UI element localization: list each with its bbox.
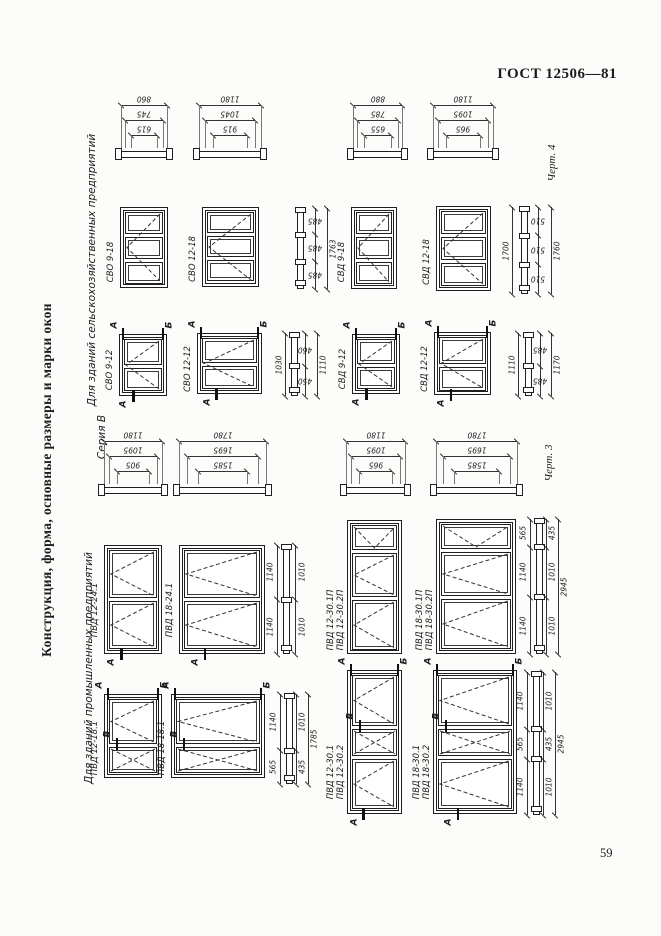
profile-block [289, 387, 300, 393]
dim-label: 1700 [502, 241, 511, 260]
dim-line [446, 135, 480, 136]
profile-block [519, 285, 530, 291]
dim-line [359, 471, 360, 484]
section-mark-letter: А [119, 401, 130, 408]
dim-label: 1180 [123, 431, 142, 440]
section-mark-tick [204, 648, 207, 660]
section-mark-tick [436, 664, 439, 676]
opening-symbol-icon [352, 759, 397, 809]
profile-block [531, 671, 542, 677]
dim-line [247, 471, 248, 484]
dim-line [351, 456, 400, 457]
dim-line [400, 456, 401, 484]
dim-line [280, 694, 281, 784]
dim-line [364, 135, 365, 148]
dim-line [157, 135, 158, 148]
section-mark-letter: А [107, 659, 118, 666]
opening-symbol-icon [438, 759, 512, 809]
dim-line [198, 471, 247, 472]
sill-bar [175, 487, 270, 494]
section-mark-tick [445, 720, 448, 732]
dim-label: 1140 [266, 617, 275, 636]
dim-label: 1110 [319, 355, 328, 374]
dim-label: 435 [298, 760, 307, 774]
dim-line [179, 441, 266, 442]
section-mark-tick [257, 327, 260, 339]
profile-bar [521, 207, 528, 294]
dim-label: 485 [308, 244, 322, 253]
section-mark-tick [486, 326, 489, 338]
sill-bar [100, 487, 166, 494]
dim-label: 450 [298, 377, 312, 386]
dim-line [121, 105, 167, 106]
opening-symbol-icon [352, 600, 397, 650]
dim-label: 1780 [213, 431, 232, 440]
sill-bar [429, 151, 497, 158]
section-mark-tick [107, 688, 110, 700]
dim-label: 655 [370, 125, 384, 134]
dim-label: 1140 [519, 563, 528, 582]
section-mark-tick [450, 389, 453, 401]
dim-label: 460 [298, 345, 312, 354]
section-mark-letter: Б [515, 658, 526, 665]
dim-line [443, 456, 510, 457]
profile-block [534, 645, 545, 651]
sill-end-block [161, 484, 168, 496]
profile-block [289, 363, 300, 369]
sill-bar [349, 151, 406, 158]
dim-line [109, 456, 157, 457]
dim-line [104, 441, 105, 484]
dim-label: 1010 [298, 713, 307, 732]
dim-label: 1030 [275, 355, 284, 374]
section-mark-tick [362, 808, 365, 820]
dim-label: 1760 [553, 241, 562, 260]
dim-line [398, 120, 399, 148]
dim-line [402, 105, 403, 148]
dim-line [438, 120, 488, 121]
dim-label: 1785 [310, 729, 319, 748]
dim-label: 485 [308, 217, 322, 226]
profile-block [284, 775, 295, 781]
profile-block [284, 693, 295, 699]
dim-label: 565 [516, 737, 525, 751]
window-mark-label: СВО 9-12 [105, 350, 115, 390]
opening-symbol-icon [438, 675, 512, 726]
sill-end-block [173, 484, 180, 496]
dim-line [187, 456, 258, 457]
opening-symbol-icon [352, 675, 397, 726]
dim-label: 1170 [553, 355, 562, 374]
sill-end-block [401, 148, 408, 160]
dim-label: 1140 [519, 616, 528, 635]
dim-line [436, 441, 437, 484]
dim-line [446, 135, 447, 148]
profile-bar [286, 694, 293, 784]
window-mark-label: ПВД 18-30.1П ПВД 18-30.2П [415, 590, 435, 651]
dim-line [131, 135, 157, 136]
section-mark-letter: А [349, 819, 360, 826]
section-mark-tick [200, 327, 203, 339]
dim-line [266, 441, 267, 484]
dim-line [392, 471, 393, 484]
dim-label: 1585 [467, 461, 486, 470]
dim-label: 1140 [269, 713, 278, 732]
dim-label: 915 [223, 125, 237, 134]
section-mark-letter: В [432, 713, 443, 720]
dim-label: 1140 [516, 778, 525, 797]
dim-line [213, 135, 247, 136]
dim-label: 1010 [545, 691, 554, 710]
dim-line [213, 135, 214, 148]
dim-line [512, 207, 513, 294]
dim-line [109, 456, 110, 484]
opening-symbol-icon [357, 339, 395, 389]
dim-label: 1763 [329, 239, 338, 258]
sill-bar [432, 487, 521, 494]
sill-end-block [347, 148, 354, 160]
dim-line [247, 135, 248, 148]
dim-label: 1045 [220, 110, 239, 119]
dim-line [117, 471, 149, 472]
drawing-canvas: 8607456151180104591588078565511801095965… [0, 0, 661, 936]
window-mark-label: ПВД 18-30.1 ПВД 18-30.2 [412, 745, 432, 799]
dim-line [199, 105, 200, 148]
section-mark-letter: Б [400, 658, 411, 665]
section-mark-tick [122, 328, 125, 340]
opening-symbol-icon [207, 212, 254, 282]
dim-line [353, 105, 354, 148]
dim-line [205, 120, 206, 148]
profile-block [519, 262, 530, 268]
dim-line [255, 120, 256, 148]
sill-end-block [193, 148, 200, 160]
dim-line [443, 456, 444, 484]
sill-bar [195, 151, 265, 158]
dim-label: 435 [545, 737, 554, 751]
profile-block [523, 332, 534, 338]
section-mark-tick [355, 328, 358, 340]
dim-label: 1180 [366, 431, 385, 440]
dim-line [199, 105, 261, 106]
dim-line [167, 105, 168, 148]
section-mark-letter: В [346, 713, 357, 720]
opening-symbol-icon [352, 553, 397, 597]
dim-label: 1095 [123, 446, 142, 455]
dim-line [353, 105, 402, 106]
dim-label: 880 [370, 95, 384, 104]
dim-label: 1010 [548, 616, 557, 635]
window-mark-label: ПВД 18-18.1 [157, 721, 167, 775]
dim-line [104, 441, 162, 442]
sill-end-block [492, 148, 499, 160]
dim-line [540, 333, 541, 396]
dim-label: 965 [456, 125, 470, 134]
section-mark-letter: А [343, 322, 354, 329]
profile-block [295, 232, 306, 238]
section-mark-letter: А [110, 322, 121, 329]
dim-label: 565 [519, 526, 528, 540]
opening-symbol-icon [441, 552, 511, 596]
section-mark-letter: В [103, 730, 114, 737]
dim-line [351, 456, 352, 484]
dim-line [162, 441, 163, 484]
dim-line [359, 471, 392, 472]
dim-label: 1010 [548, 563, 557, 582]
sill-end-block [427, 148, 434, 160]
dim-label: 965 [368, 461, 382, 470]
dim-label: 485 [533, 377, 547, 386]
section-mark-letter: Б [398, 322, 409, 329]
dim-label: 1585 [213, 461, 232, 470]
sill-end-block [265, 484, 272, 496]
profile-block [281, 597, 292, 603]
section-mark-tick [215, 388, 218, 400]
dim-line [346, 441, 347, 484]
dim-line [125, 120, 126, 148]
window-mark-label: СВД 12-12 [420, 346, 430, 392]
dim-line [198, 471, 199, 484]
dim-label: 1140 [516, 691, 525, 710]
sill-end-block [404, 484, 411, 496]
profile-bar [297, 208, 304, 289]
dim-line [510, 456, 511, 484]
dim-label: 510 [531, 275, 545, 284]
dim-line [187, 456, 188, 484]
dim-line [131, 135, 132, 148]
dim-label: 785 [370, 110, 384, 119]
section-mark-letter: Б [263, 682, 274, 689]
dim-line [205, 120, 255, 121]
opening-symbol-icon [439, 337, 486, 390]
section-mark-tick [512, 664, 515, 676]
section-mark-letter: А [425, 320, 436, 327]
opening-symbol-icon [176, 747, 260, 773]
dim-line [405, 441, 406, 484]
profile-block [523, 363, 534, 369]
dim-line [433, 105, 493, 106]
section-mark-tick [350, 664, 353, 676]
opening-symbol-icon [438, 729, 512, 756]
window-mark-label: ПВД 12-24.1 [90, 583, 100, 637]
section-mark-tick [365, 388, 368, 400]
dim-label: 1180 [453, 95, 472, 104]
sill-end-block [340, 484, 347, 496]
section-mark-letter: А [190, 659, 201, 666]
dim-line [480, 135, 481, 148]
dim-line [364, 135, 391, 136]
dim-line [499, 471, 500, 484]
opening-symbol-icon [125, 212, 163, 283]
section-mark-letter: А [437, 400, 448, 407]
document-page: ГОСТ 12506—81 Конструкция, форма, основн… [0, 0, 661, 936]
opening-symbol-icon [184, 550, 260, 598]
dim-label: 860 [137, 95, 151, 104]
dim-label: 2945 [560, 577, 569, 596]
window-mark-label: СВО 12-12 [183, 346, 193, 392]
dim-label: 1180 [220, 95, 239, 104]
dim-line [357, 120, 358, 148]
dim-line [179, 441, 180, 484]
dim-label: 1695 [467, 446, 486, 455]
dim-line [530, 519, 531, 654]
section-mark-tick [162, 328, 165, 340]
section-mark-letter: А [202, 399, 213, 406]
sill-end-block [166, 148, 173, 160]
dim-label: 1780 [467, 431, 486, 440]
profile-block [519, 206, 530, 212]
section-mark-letter: Б [260, 321, 271, 328]
opening-symbol-icon [441, 211, 486, 286]
section-mark-tick [437, 326, 440, 338]
dim-line [305, 333, 306, 396]
profile-block [295, 207, 306, 213]
dim-label: 1695 [213, 446, 232, 455]
dim-label: 745 [137, 110, 151, 119]
dim-line [527, 672, 528, 815]
sill-end-block [115, 148, 122, 160]
section-mark-tick [174, 688, 177, 700]
section-mark-letter: А [424, 658, 435, 665]
window-mark-label: СВД 9-18 [337, 242, 347, 282]
profile-bar [533, 672, 540, 815]
dim-line [454, 471, 499, 472]
opening-symbol-icon [441, 599, 511, 649]
profile-block [519, 233, 530, 239]
dim-label: 485 [308, 271, 322, 280]
section-mark-letter: А [162, 682, 173, 689]
opening-symbol-icon [109, 601, 157, 649]
dim-label: 1010 [545, 778, 554, 797]
dim-line [433, 105, 434, 148]
opening-symbol-icon [202, 338, 257, 389]
opening-symbol-icon [356, 212, 392, 284]
sill-end-block [516, 484, 523, 496]
dim-label: 615 [137, 125, 151, 134]
section-mark-letter: А [95, 682, 106, 689]
opening-symbol-icon [109, 550, 157, 598]
section-mark-tick [260, 688, 263, 700]
section-mark-letter: А [352, 399, 363, 406]
dim-label: 1140 [266, 563, 275, 582]
opening-symbol-icon [109, 747, 157, 773]
dim-line [125, 120, 163, 121]
dim-line [517, 441, 518, 484]
dim-line [261, 105, 262, 148]
profile-block [295, 259, 306, 265]
sill-end-block [260, 148, 267, 160]
dim-line [518, 333, 519, 396]
profile-block [295, 280, 306, 286]
profile-block [281, 544, 292, 550]
dim-line [438, 120, 439, 148]
dim-line [493, 105, 494, 148]
dim-label: 1110 [508, 355, 517, 374]
section-mark-tick [132, 390, 135, 402]
window-mark-label: СВД 12-18 [422, 239, 432, 285]
window-mark-label: СВО 12-18 [188, 236, 198, 282]
window-mark-label: СВД 9-12 [338, 349, 348, 389]
sill-end-block [430, 484, 437, 496]
profile-block [523, 387, 534, 393]
dim-label: 1010 [298, 617, 307, 636]
dim-label: 1095 [453, 110, 472, 119]
opening-symbol-icon [184, 601, 260, 649]
section-mark-letter: В [170, 730, 181, 737]
dim-label: 510 [531, 246, 545, 255]
section-mark-letter: А [188, 321, 199, 328]
dim-line [149, 471, 150, 484]
dim-line [454, 471, 455, 484]
opening-symbol-icon [352, 525, 397, 550]
dim-label: 905 [126, 461, 140, 470]
dim-line [117, 471, 118, 484]
dim-label: 485 [533, 345, 547, 354]
profile-block [531, 806, 542, 812]
sill-bar [117, 151, 171, 158]
dim-line [157, 456, 158, 484]
sill-end-block [98, 484, 105, 496]
dim-line [357, 120, 398, 121]
section-mark-tick [397, 664, 400, 676]
dim-line [436, 441, 517, 442]
section-mark-tick [183, 738, 186, 750]
dim-label: 1010 [298, 563, 307, 582]
dim-line [488, 120, 489, 148]
sill-bar [342, 487, 409, 494]
opening-symbol-icon [176, 699, 260, 744]
section-mark-tick [157, 688, 160, 700]
dim-line [258, 456, 259, 484]
section-mark-tick [359, 720, 362, 732]
dim-label: 510 [531, 217, 545, 226]
window-mark-label: ПВД 12-30.1П ПВД 12-30.2П [326, 590, 346, 651]
dim-label: 435 [548, 526, 557, 540]
section-mark-letter: А [338, 658, 349, 665]
window-mark-label: ПВД 12-18.1 [90, 721, 100, 775]
dim-line [285, 333, 286, 396]
dim-line [391, 135, 392, 148]
profile-bar [536, 519, 543, 654]
section-mark-tick [120, 648, 123, 660]
section-mark-tick [395, 328, 398, 340]
dim-label: 1095 [366, 446, 385, 455]
window-mark-label: ПВД 18-24.1 [165, 583, 175, 637]
dim-line [346, 441, 405, 442]
section-mark-letter: А [444, 819, 455, 826]
section-mark-tick [116, 738, 119, 750]
profile-block [289, 332, 300, 338]
dim-label: 565 [269, 760, 278, 774]
opening-symbol-icon [352, 729, 397, 756]
window-mark-label: СВО 9-18 [106, 242, 116, 282]
dim-line [121, 105, 122, 148]
section-mark-letter: Б [489, 320, 500, 327]
profile-block [534, 518, 545, 524]
profile-block [281, 645, 292, 651]
opening-symbol-icon [441, 524, 511, 549]
dim-line [163, 120, 164, 148]
dim-label: 2945 [557, 734, 566, 753]
window-mark-label: ПВД 12-30.1 ПВД 12-30.2 [326, 745, 346, 799]
opening-symbol-icon [124, 339, 162, 391]
section-mark-letter: Б [165, 322, 176, 329]
section-mark-tick [457, 808, 460, 820]
